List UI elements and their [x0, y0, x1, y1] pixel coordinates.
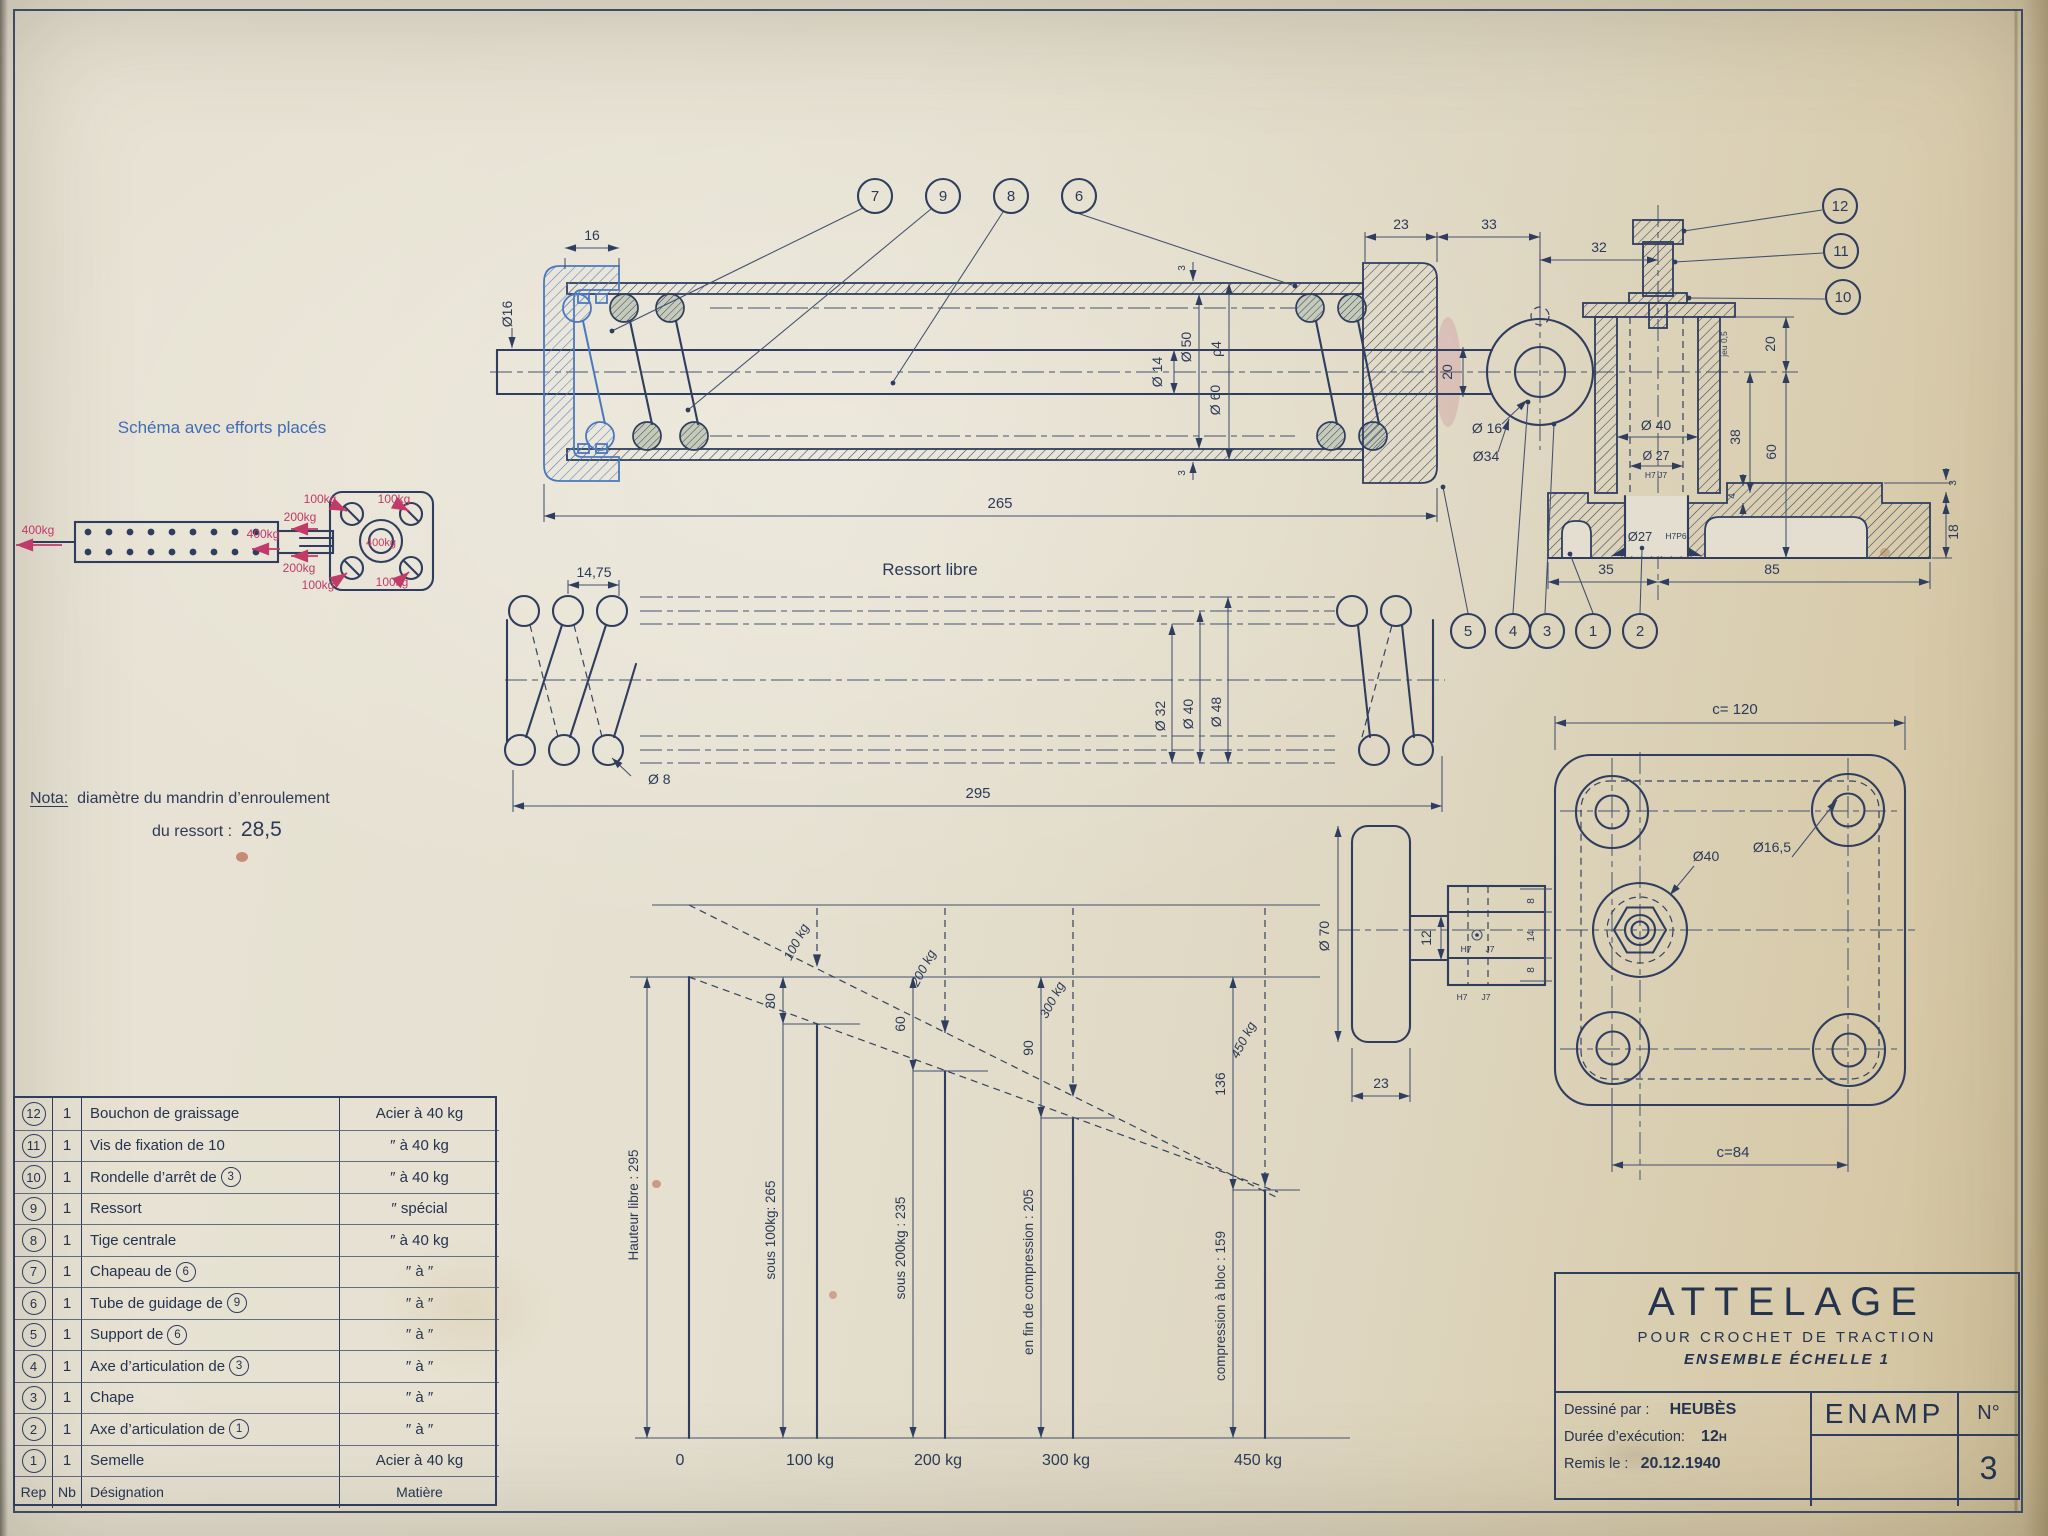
dim-phi8: Ø 8	[648, 771, 671, 787]
duration-value: 12	[1701, 1428, 1719, 1446]
ref-circle: 3	[221, 1167, 241, 1187]
dim-c84: c=84	[1717, 1144, 1750, 1161]
rep-cell: 8	[15, 1224, 52, 1256]
dim-8a: 8	[1526, 898, 1537, 904]
title-block-meta: Dessiné par : HEUBÈS Durée d’exécution: …	[1556, 1393, 1810, 1506]
force-label: 100kg	[302, 578, 335, 592]
rep-cell: 4	[15, 1350, 52, 1382]
dim-16: 16	[584, 227, 600, 243]
designation-cell: Axe d’articulation de1	[81, 1413, 339, 1445]
header-designation: Désignation	[81, 1476, 339, 1508]
bar-label-235: sous 200kg : 235	[893, 1197, 908, 1300]
force-label: 200kg	[283, 561, 316, 575]
rep-cell: 12	[15, 1098, 52, 1130]
tol-27: H7 J7	[1645, 470, 1667, 480]
title-block: ATTELAGE POUR CROCHET DE TRACTION ENSEMB…	[1554, 1272, 2020, 1500]
callouts-top: 7 9 8 6	[610, 179, 1298, 412]
nota-line2: du ressort :	[152, 823, 232, 840]
load-450: 450 kg	[1227, 1018, 1259, 1060]
dim-phi16-rod: Ø16	[499, 301, 515, 328]
nota: Nota: diamètre du mandrin d’enroulement …	[30, 790, 490, 842]
dim-phi27-base: Ø27	[1628, 529, 1653, 544]
callouts-right: 12 11 10	[1673, 189, 1860, 314]
org-name: ENAMP	[1812, 1393, 1957, 1436]
dim-phi60: Ø 60	[1207, 385, 1223, 416]
designation-cell: Tube de guidage de9	[81, 1287, 339, 1319]
tol-h7-b: H7	[1457, 992, 1468, 1002]
dim-3-top: 3	[1177, 265, 1188, 271]
dim-23: 23	[1393, 216, 1409, 232]
xlabel-200: 200 kg	[914, 1452, 962, 1469]
dim-265: 265	[987, 495, 1012, 512]
dim-20-right: 20	[1762, 336, 1778, 352]
force-schematic: Schéma avec efforts placés	[16, 418, 433, 592]
dim-3-bot: 3	[1177, 470, 1188, 476]
callout-7: 7	[871, 188, 879, 205]
designation-cell: Vis de fixation de 10	[81, 1130, 339, 1162]
dim-rho4: ρ4	[1208, 341, 1224, 357]
dim-jeu: jeu 0,5	[1719, 331, 1729, 358]
rep-cell: 11	[15, 1130, 52, 1162]
tol-27-base: H7P6	[1665, 531, 1687, 541]
matiere-cell: ″ à ″	[339, 1256, 499, 1288]
dim-18: 18	[1945, 524, 1961, 540]
dim-8b: 8	[1526, 967, 1537, 973]
dim-3-lip: 3	[1948, 480, 1959, 486]
dim-phi16-axle: Ø 16	[1472, 420, 1503, 436]
callout-4: 4	[1509, 623, 1517, 640]
title-block-header: ATTELAGE POUR CROCHET DE TRACTION ENSEMB…	[1556, 1280, 2018, 1393]
force-label: 100kg	[304, 492, 337, 506]
designation-cell: Ressort	[81, 1193, 339, 1225]
nota-label: Nota:	[30, 790, 68, 807]
nota-line1: diamètre du mandrin d’enroulement	[77, 790, 330, 807]
dim-33: 33	[1481, 216, 1497, 232]
rep-cell: 6	[15, 1287, 52, 1319]
deflection-136: 136	[1212, 1072, 1228, 1096]
main-assembly-drawing: 16 Ø16 265 23 33 32 3 3 Ø	[490, 179, 1961, 648]
nb-cell: 1	[52, 1445, 81, 1477]
duration-label: Durée d’exécution:	[1564, 1429, 1685, 1445]
dim-c120: c= 120	[1712, 701, 1757, 718]
callout-12: 12	[1832, 198, 1849, 215]
parts-table: 12 1 Bouchon de graissage Acier à 40 kg …	[13, 1096, 497, 1506]
callout-10: 10	[1835, 289, 1852, 306]
nb-cell: 1	[52, 1413, 81, 1445]
nb-cell: 1	[52, 1319, 81, 1351]
callout-6: 6	[1075, 188, 1083, 205]
force-label: 100kg	[376, 575, 409, 589]
dim-60: 60	[1763, 444, 1779, 460]
force-label: 200kg	[284, 510, 317, 524]
callout-2: 2	[1636, 623, 1644, 640]
duration-unit: H	[1719, 1432, 1727, 1444]
dim-phi70: Ø 70	[1316, 921, 1332, 952]
bar-label-159: compression à bloc : 159	[1213, 1231, 1228, 1381]
matiere-cell: ″ à 40 kg	[339, 1224, 499, 1256]
matiere-cell: Acier à 40 kg	[339, 1445, 499, 1477]
nb-cell: 1	[52, 1256, 81, 1288]
schema-title: Schéma avec efforts placés	[118, 418, 327, 437]
callout-1: 1	[1589, 623, 1597, 640]
rep-cell: 5	[15, 1319, 52, 1351]
rep-cell: 9	[15, 1193, 52, 1225]
load-100: 100 kg	[780, 920, 812, 962]
number-cell: N° 3	[1957, 1393, 2018, 1506]
rep-cell: 2	[15, 1413, 52, 1445]
designation-cell: Support de6	[81, 1319, 339, 1351]
org-cell: ENAMP	[1810, 1393, 1957, 1506]
dim-12: 12	[1418, 930, 1434, 946]
matiere-cell: ″ à ″	[339, 1287, 499, 1319]
tol-j7: J7	[1486, 944, 1495, 954]
ref-circle: 9	[227, 1293, 247, 1313]
matiere-cell: ″ à ″	[339, 1413, 499, 1445]
dim-phi40-plan: Ø40	[1693, 848, 1720, 864]
drawn-by-value: HEUBÈS	[1670, 1401, 1737, 1419]
dim-20-neck: 20	[1439, 364, 1455, 380]
matiere-cell: ″ à 40 kg	[339, 1161, 499, 1193]
drawing-scale: ENSEMBLE ÉCHELLE 1	[1556, 1351, 2018, 1368]
designation-cell: Bouchon de graissage	[81, 1098, 339, 1130]
nb-cell: 1	[52, 1193, 81, 1225]
load-200: 200 kg	[907, 946, 939, 989]
plan-view-drawing: c= 120 c=84 Ø40 Ø16,5 Ø 70 23 12 8 14 8	[1316, 701, 1915, 1180]
nb-cell: 1	[52, 1350, 81, 1382]
nb-cell: 1	[52, 1224, 81, 1256]
nb-cell: 1	[52, 1287, 81, 1319]
dim-phi16-5: Ø16,5	[1753, 839, 1791, 855]
rep-circle: 12	[22, 1102, 46, 1126]
dim-32: 32	[1591, 239, 1607, 255]
xlabel-100: 100 kg	[786, 1452, 834, 1469]
dim-14-plan: 14	[1526, 930, 1537, 942]
drawing-title: ATTELAGE	[1556, 1280, 2018, 1325]
deflection-90: 90	[1020, 1040, 1036, 1056]
designation-cell: Chape	[81, 1382, 339, 1414]
bar-label-265: sous 100kg: 265	[763, 1180, 778, 1279]
dim-23-plan: 23	[1373, 1075, 1389, 1091]
rep-cell: 7	[15, 1256, 52, 1288]
dim-phi40-spring: Ø 40	[1180, 699, 1196, 730]
ref-circle: 3	[229, 1356, 249, 1376]
designation-cell: Semelle	[81, 1445, 339, 1477]
dim-phi48: Ø 48	[1208, 697, 1224, 728]
rep-cell: 3	[15, 1382, 52, 1414]
force-label: 400kg	[22, 523, 55, 537]
number-value: 3	[1959, 1450, 2018, 1487]
nb-cell: 1	[52, 1382, 81, 1414]
dim-phi27: Ø 27	[1642, 449, 1669, 463]
spring-drawing: Ressort libre	[505, 560, 1445, 812]
bar-label-205: en fin de compression : 205	[1021, 1189, 1036, 1355]
nb-cell: 1	[52, 1098, 81, 1130]
dim-phi14: Ø 14	[1149, 357, 1165, 388]
designation-cell: Tige centrale	[81, 1224, 339, 1256]
nb-cell: 1	[52, 1130, 81, 1162]
date-label: Remis le :	[1564, 1456, 1628, 1472]
matiere-cell: ″ à ″	[339, 1350, 499, 1382]
callout-8: 8	[1007, 188, 1015, 205]
matiere-cell: ″ à 40 kg	[339, 1130, 499, 1162]
compression-chart: 30 60 90 136 Hauteur libre : 295 sous 10…	[626, 905, 1350, 1469]
callout-11: 11	[1833, 243, 1849, 260]
deflection-30: 30	[762, 993, 778, 1009]
xlabel-0: 0	[676, 1452, 685, 1469]
header-rep: Rep	[15, 1476, 52, 1508]
force-label: 400kg	[247, 527, 280, 541]
nb-cell: 1	[52, 1161, 81, 1193]
xlabel-300: 300 kg	[1042, 1452, 1090, 1469]
matiere-cell: ″ à ″	[339, 1382, 499, 1414]
date-value: 20.12.1940	[1641, 1455, 1721, 1473]
tol-j7-b: J7	[1482, 992, 1491, 1002]
dim-295: 295	[965, 785, 990, 802]
matiere-cell: ″ à ″	[339, 1319, 499, 1351]
dim-85: 85	[1764, 561, 1780, 577]
force-label: 400kg	[366, 537, 396, 549]
dim-4: 4	[1727, 493, 1738, 499]
header-matiere: Matière	[339, 1476, 499, 1508]
dim-phi32: Ø 32	[1152, 701, 1168, 732]
matiere-cell: Acier à 40 kg	[339, 1098, 499, 1130]
callout-3: 3	[1543, 623, 1551, 640]
ref-circle: 6	[167, 1325, 187, 1345]
spring-title: Ressort libre	[882, 560, 977, 579]
blueprint-sheet: Schéma avec efforts placés	[0, 0, 2048, 1536]
designation-cell: Rondelle d’arrêt de3	[81, 1161, 339, 1193]
tol-h7: H7	[1461, 944, 1472, 954]
drawn-by-label: Dessiné par :	[1564, 1402, 1649, 1418]
dim-phi40: Ø 40	[1641, 417, 1672, 433]
number-label: N°	[1959, 1393, 2018, 1436]
dim-38: 38	[1727, 429, 1743, 445]
callout-5: 5	[1464, 623, 1472, 640]
deflection-60: 60	[892, 1016, 908, 1032]
nota-value: 28,5	[241, 818, 282, 841]
rep-cell: 1	[15, 1445, 52, 1477]
dim-14-75: 14,75	[576, 564, 611, 580]
designation-cell: Axe d’articulation de3	[81, 1350, 339, 1382]
xlabel-450: 450 kg	[1234, 1452, 1282, 1469]
ref-circle: 1	[229, 1419, 249, 1439]
designation-cell: Chapeau de6	[81, 1256, 339, 1288]
dim-phi50: Ø 50	[1178, 332, 1194, 363]
header-nb: Nb	[52, 1476, 81, 1508]
dim-phi34: Ø34	[1473, 448, 1500, 464]
callout-9: 9	[939, 188, 947, 205]
matiere-cell: ″ spécial	[339, 1193, 499, 1225]
drawing-subtitle: POUR CROCHET DE TRACTION	[1556, 1329, 2018, 1346]
bar-label-295: Hauteur libre : 295	[626, 1149, 641, 1260]
force-label: 100kg	[378, 492, 411, 506]
rep-cell: 10	[15, 1161, 52, 1193]
spring-dots	[85, 529, 260, 556]
dim-35: 35	[1598, 561, 1614, 577]
ref-circle: 6	[176, 1262, 196, 1282]
